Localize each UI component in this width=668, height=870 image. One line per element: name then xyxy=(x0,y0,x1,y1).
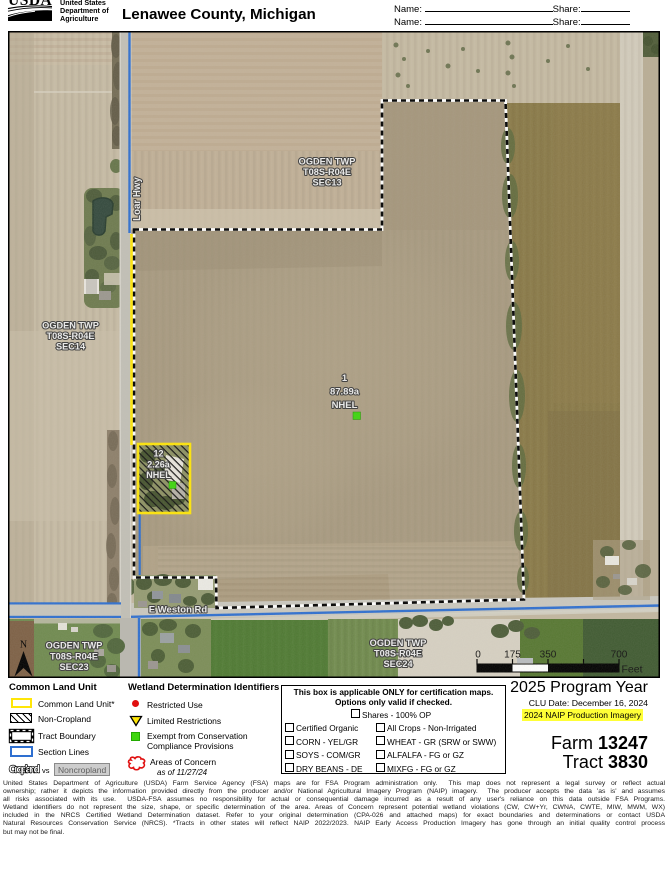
svg-text:T08S-R04E: T08S-R04E xyxy=(46,331,94,341)
svg-text:E Weston Rd: E Weston Rd xyxy=(149,605,208,616)
svg-text:SEC23: SEC23 xyxy=(59,662,88,672)
svg-text:OGDEN TWP: OGDEN TWP xyxy=(42,321,99,331)
svg-text:OGDEN TWP: OGDEN TWP xyxy=(46,641,103,651)
svg-text:NHEL: NHEL xyxy=(146,470,171,480)
svg-text:2.26a: 2.26a xyxy=(147,460,171,470)
svg-text:SEC13: SEC13 xyxy=(312,178,341,188)
svg-text:0: 0 xyxy=(475,650,481,661)
svg-text:NHEL: NHEL xyxy=(332,400,358,411)
svg-text:Feet: Feet xyxy=(622,664,643,676)
svg-text:SEC14: SEC14 xyxy=(56,342,86,352)
svg-text:1: 1 xyxy=(342,373,348,384)
svg-text:350: 350 xyxy=(540,650,557,661)
svg-text:700: 700 xyxy=(611,650,628,661)
svg-text:12: 12 xyxy=(153,449,163,459)
svg-text:Cropland: Cropland xyxy=(9,764,40,776)
svg-text:OGDEN TWP: OGDEN TWP xyxy=(370,638,427,648)
svg-text:175: 175 xyxy=(504,650,521,661)
svg-text:OGDEN TWP: OGDEN TWP xyxy=(299,157,356,167)
svg-text:T08S-R04E: T08S-R04E xyxy=(374,649,422,659)
svg-text:SEC24: SEC24 xyxy=(383,659,413,669)
svg-text:T08S-R04E: T08S-R04E xyxy=(303,167,351,177)
svg-text:N: N xyxy=(20,640,27,651)
svg-text:Loar Hwy: Loar Hwy xyxy=(132,177,143,221)
svg-text:87.89a: 87.89a xyxy=(330,387,360,398)
svg-text:T08S-R04E: T08S-R04E xyxy=(50,652,98,662)
